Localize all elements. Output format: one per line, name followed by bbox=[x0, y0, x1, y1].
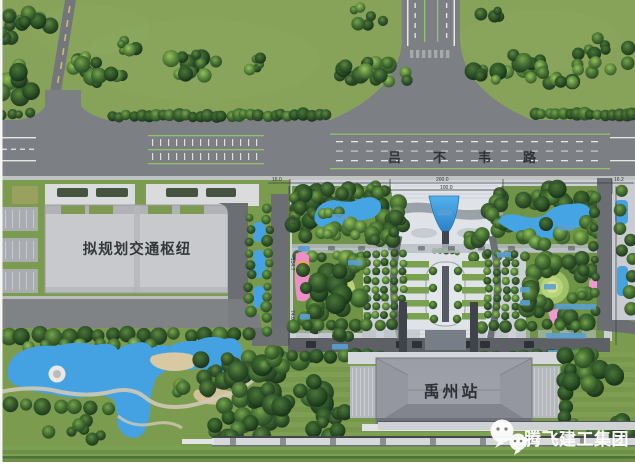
svg-text:100.0: 100.0 bbox=[440, 185, 453, 191]
svg-text:74.0: 74.0 bbox=[289, 310, 295, 320]
svg-text:禹州站: 禹州站 bbox=[423, 382, 480, 401]
svg-text:16.2: 16.2 bbox=[614, 177, 624, 183]
svg-text:吕不韦路: 吕不韦路 bbox=[388, 150, 568, 165]
svg-text:拟规划交通枢纽: 拟规划交通枢纽 bbox=[83, 240, 192, 258]
svg-text:腾飞建工集团: 腾飞建工集团 bbox=[524, 429, 629, 449]
svg-text:16.0: 16.0 bbox=[272, 177, 282, 183]
svg-text:154.7: 154.7 bbox=[289, 258, 295, 271]
svg-text:200.0: 200.0 bbox=[436, 177, 449, 183]
svg-text:67.7: 67.7 bbox=[289, 215, 295, 225]
